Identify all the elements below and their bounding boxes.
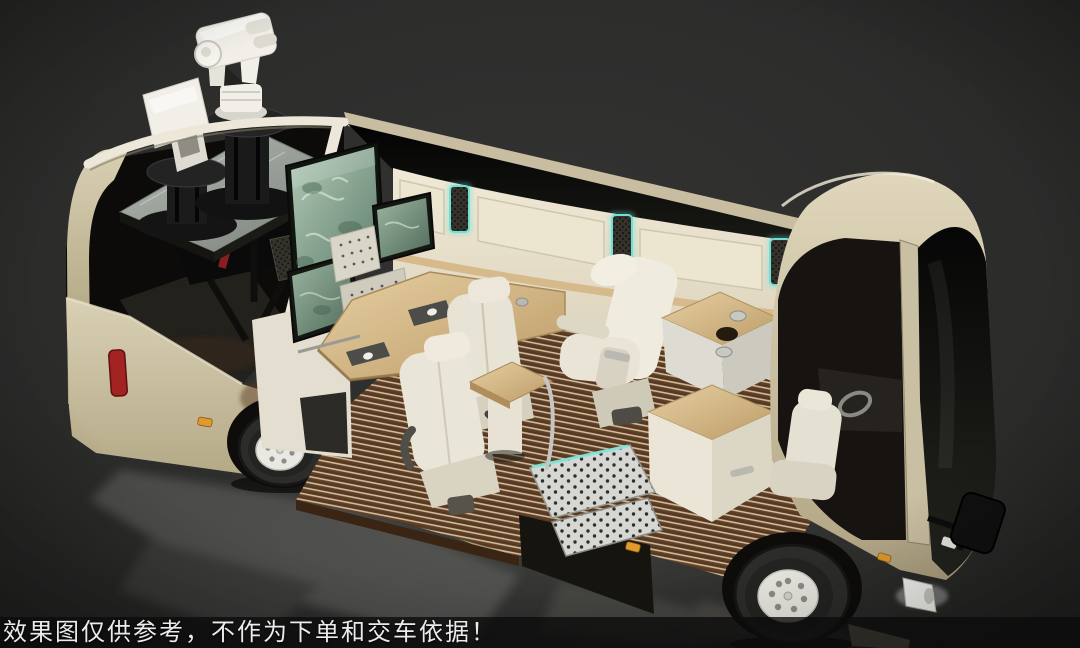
disclaimer-text: 效果图仅供参考，不作为下单和交车依据！ [3, 621, 497, 645]
vignette [0, 0, 1080, 648]
bus-render-scene [0, 0, 1080, 648]
render-canvas: 效果图仅供参考，不作为下单和交车依据！ [0, 0, 1080, 648]
disclaimer-bar: 效果图仅供参考，不作为下单和交车依据！ [0, 617, 1080, 648]
